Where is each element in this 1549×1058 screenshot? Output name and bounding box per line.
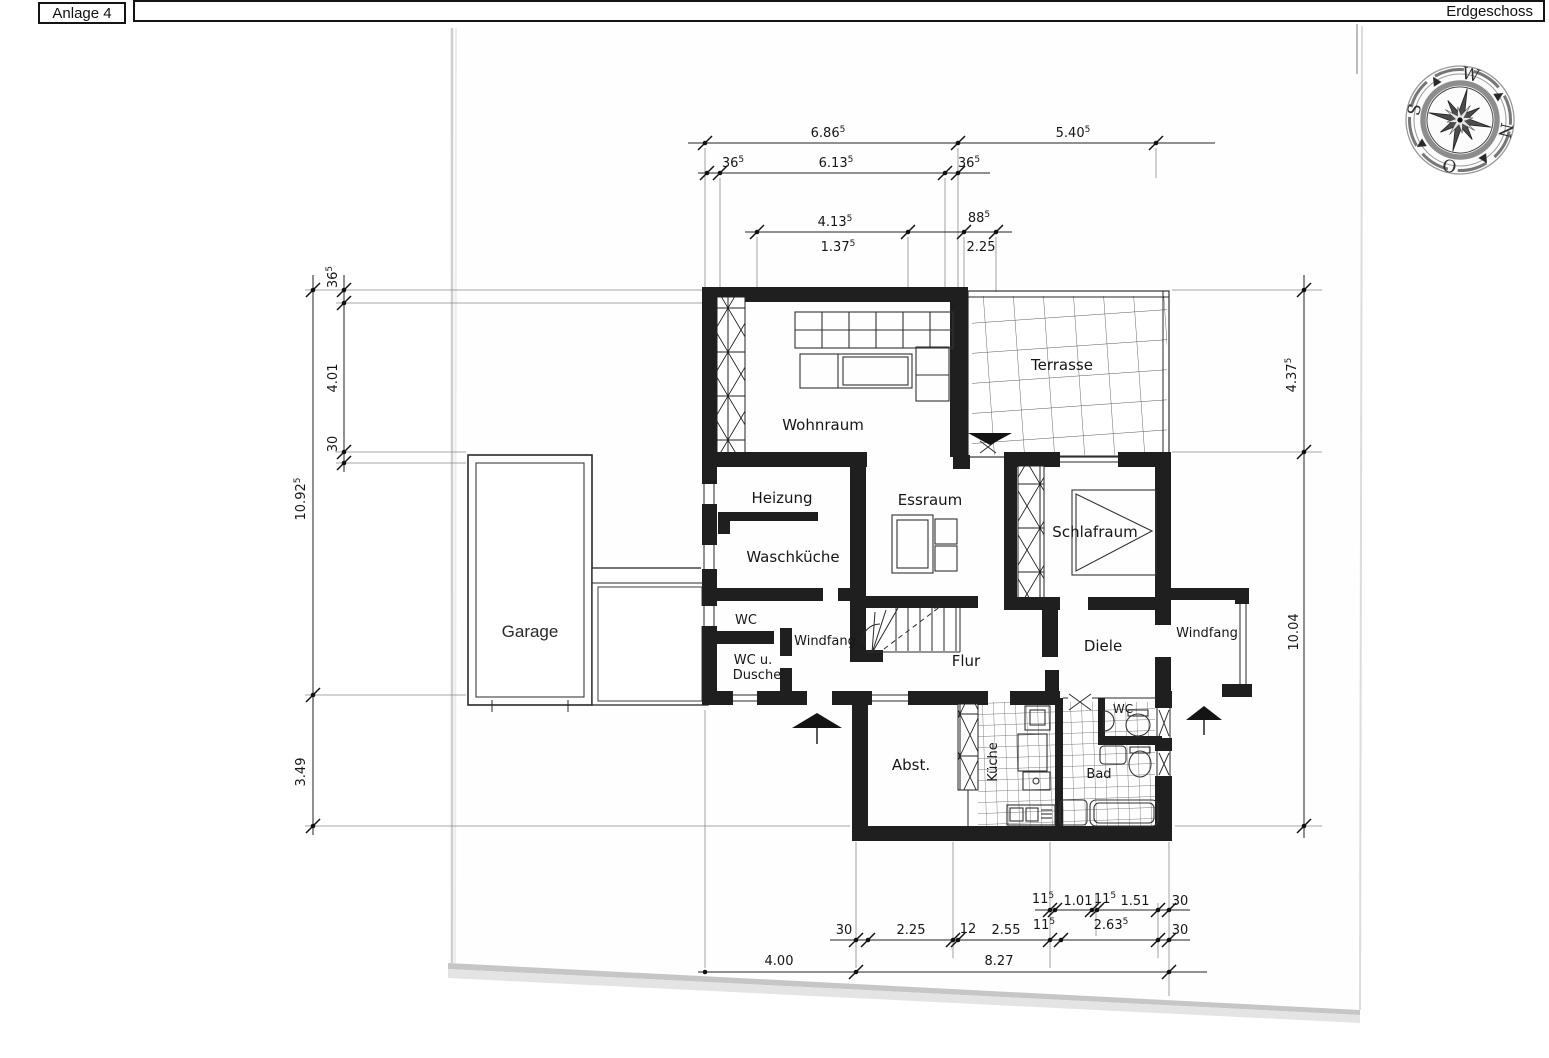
schlafraum-wardrobe [1018,466,1044,598]
wall-abst-top-b [908,691,988,705]
room-label-heizung: Heizung [751,489,812,507]
wall-wc-divider [712,631,774,644]
dim-botB-30b: 30 [1172,923,1189,938]
dim-left-30: 30 [326,436,341,453]
dim-botC-400: 4.00 [765,954,794,969]
wall-center-vertical [850,452,866,662]
wall-mid-top-left [702,452,867,467]
room-label-windfang-right: Windfang [1176,626,1238,641]
wall-left-insulation [717,297,745,455]
room-label-abst: Abst. [892,756,930,774]
wall-right-lower-a [1155,691,1172,708]
wall-waschkueche-post [838,588,852,601]
wall-windfang-r-corner [1222,684,1252,697]
room-label-wohnraum: Wohnraum [782,416,864,434]
floor-title-bar: Erdgeschoss [133,0,1545,22]
dim-botB-225: 2.25 [897,923,926,938]
wall-windfang-r-post [1235,588,1249,604]
dim-left-1092: 10.925 [293,478,309,521]
dim-botA-101: 1.01 [1064,894,1093,909]
room-label-diele: Diele [1084,637,1122,655]
wall-stairs-top [862,596,978,608]
wall-terrasse-foot [953,455,970,469]
room-label-schlafraum: Schlafraum [1052,523,1137,541]
wall-right-upper [1155,452,1171,603]
room-label-waschkueche: Waschküche [746,548,839,566]
wall-flur-diele-stub [1042,597,1058,657]
dim-botC-827: 8.27 [985,954,1014,969]
wall-entry-right [757,691,807,705]
floor-title: Erdgeschoss [1446,3,1533,20]
kueche-cupboard-strip [958,704,978,790]
room-label-kueche: Küche [986,742,1001,782]
wall-waschkueche-divider [705,588,823,601]
garage-outline [468,455,592,705]
room-label-garage: Garage [502,622,559,641]
annex-title-box: Anlage 4 [38,2,126,24]
room-label-bad: Bad [1086,767,1111,782]
dim-botA-30: 30 [1172,894,1189,909]
floorplan-canvas: W N O S [0,0,1549,1058]
wall-windfang-stub-lower [780,668,792,692]
terrasse-paving [972,296,1167,455]
room-label-wc: WC [735,613,757,628]
wall-right-door-post-a [1155,603,1171,625]
garage-annex-outline [592,568,708,705]
wall-windfang-r-top [1171,588,1235,600]
wall-kueche-top [1010,691,1060,705]
wall-abst-left [852,691,868,840]
wall-heizung-divider [718,512,818,521]
room-label-flur: Flur [952,652,981,670]
wall-left-upper [702,287,717,457]
paper-left-edge-soft [455,28,456,963]
wall-right-lower-b [1155,738,1172,751]
room-label-wc-dusche-2: Dusche [733,668,781,683]
wall-entry-left [704,691,733,705]
dim-right-1004: 10.04 [1287,613,1302,650]
dim-botB-12: 12 [960,922,977,937]
compass-rose: W N O S [1393,53,1527,187]
annex-title: Anlage 4 [52,5,111,22]
wall-right-door-post-b [1155,657,1171,693]
wall-wc-bad-bottom [1098,736,1162,745]
dim-left-401: 4.01 [326,364,341,393]
wall-windfang-stub-upper [780,628,792,656]
dim-botB-30a: 30 [836,923,853,938]
wall-bottom [852,826,1172,841]
room-label-windfang-left: Windfang [794,634,856,649]
dim-left-36: 365 [325,266,341,288]
dim-top-225: 2.25 [967,240,996,255]
wall-heizung-notch [718,512,730,534]
dim-botB-255: 2.55 [992,923,1021,938]
room-label-wc-bad: WC [1113,702,1133,716]
room-label-terrasse: Terrasse [1030,356,1093,374]
room-label-wc-dusche-1: WC u. [734,653,772,668]
wall-kueche-bad-divider [1055,698,1063,826]
dim-botA-151: 1.51 [1121,894,1150,909]
room-label-essraum: Essraum [898,491,963,509]
wall-schlafraum-left [1004,455,1017,602]
dim-left-349: 3.49 [294,758,309,787]
